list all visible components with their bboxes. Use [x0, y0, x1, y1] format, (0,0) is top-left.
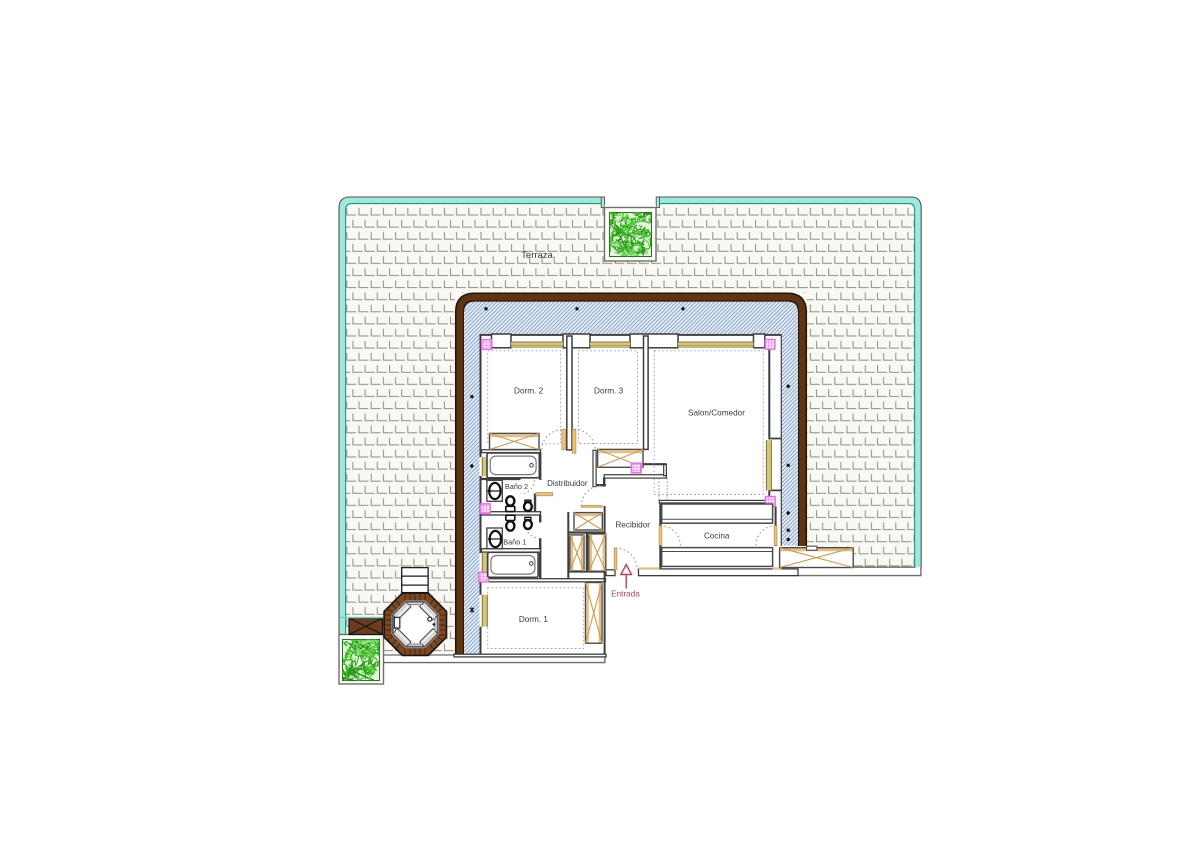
- svg-text:Cocina: Cocina: [704, 532, 730, 541]
- svg-text:Distribuidor: Distribuidor: [547, 479, 588, 488]
- svg-text:Recibidor: Recibidor: [615, 521, 650, 530]
- svg-text:Dorm. 2: Dorm. 2: [514, 387, 544, 396]
- svg-text:Entrada: Entrada: [611, 590, 640, 599]
- svg-text:Salon/Comedor: Salon/Comedor: [688, 409, 745, 418]
- svg-text:Terraza: Terraza: [521, 250, 553, 261]
- svg-text:Dorm. 1: Dorm. 1: [519, 615, 549, 624]
- svg-text:Baño 1: Baño 1: [503, 537, 526, 546]
- svg-text:Dorm. 3: Dorm. 3: [594, 387, 624, 396]
- svg-text:Baño 2: Baño 2: [505, 482, 528, 491]
